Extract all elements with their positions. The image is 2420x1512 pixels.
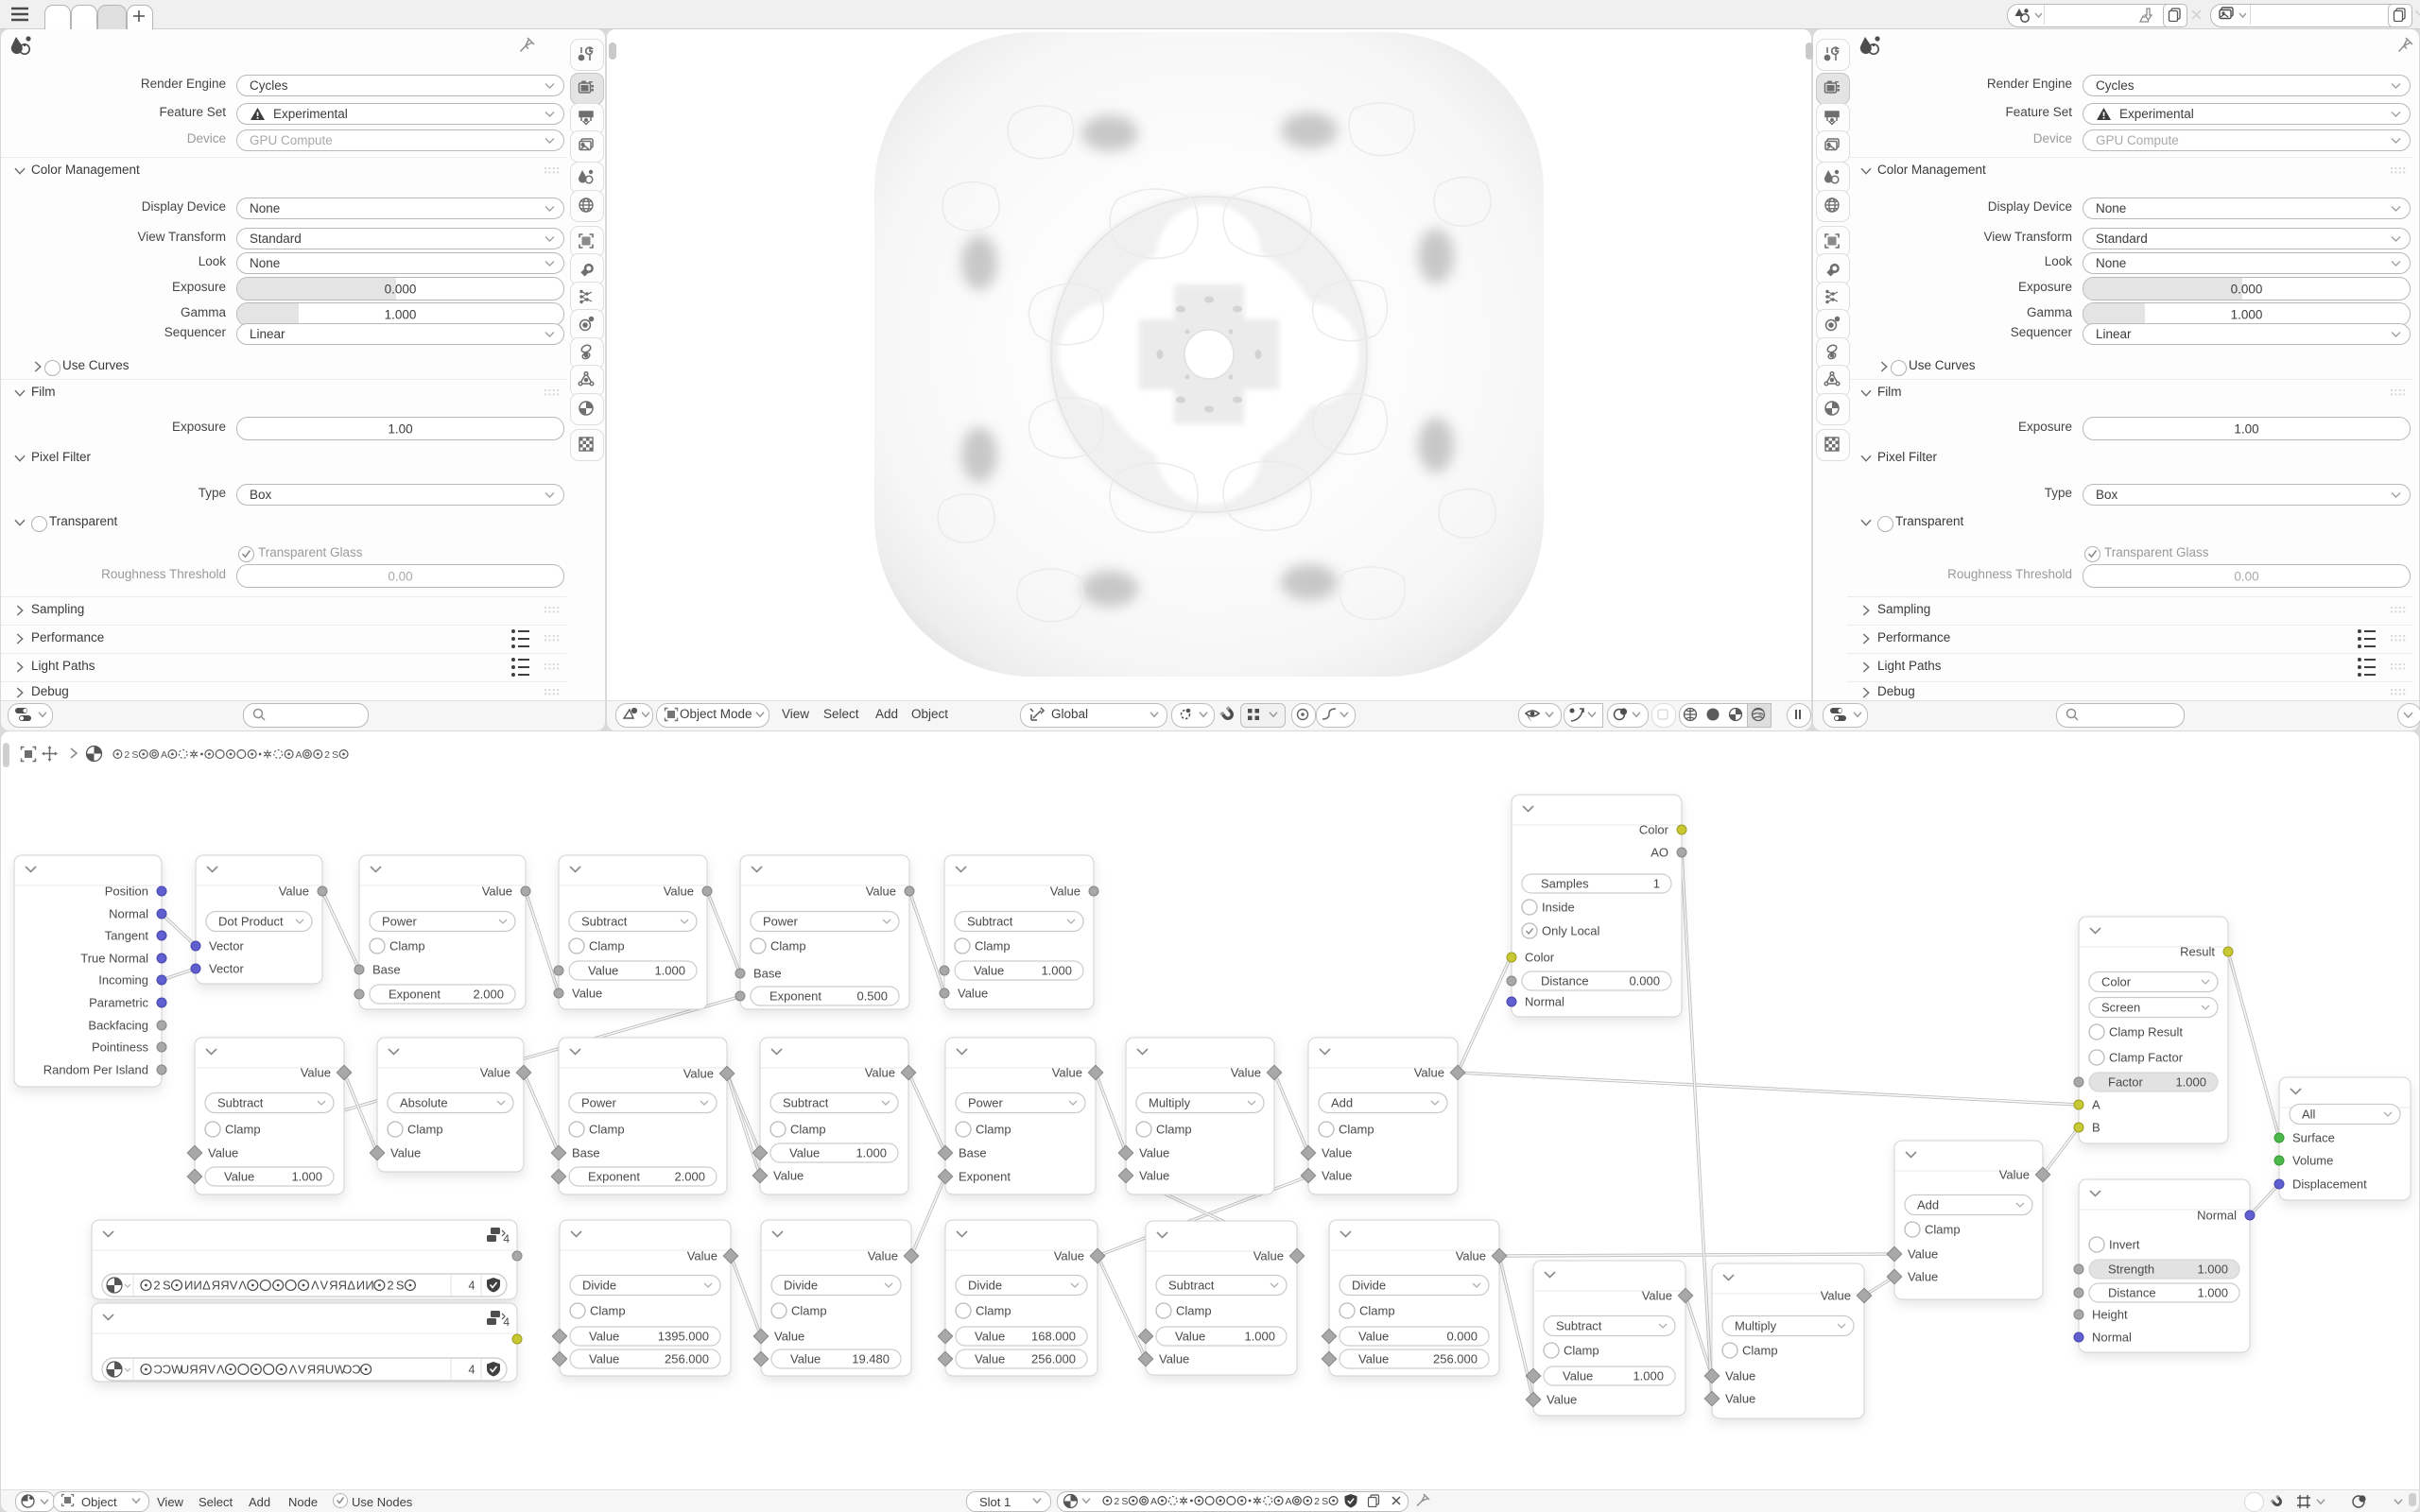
- svg-text:Value: Value: [1908, 1270, 1938, 1284]
- svg-text:C: C: [153, 1363, 162, 1377]
- svg-text:4: 4: [469, 1364, 475, 1377]
- svg-text:A: A: [1150, 1496, 1157, 1507]
- svg-text:1: 1: [1653, 877, 1660, 891]
- svg-text:2: 2: [153, 1279, 160, 1293]
- svg-text:Clamp: Clamp: [1925, 1223, 1961, 1237]
- svg-text:A: A: [296, 749, 302, 761]
- svg-text:Value: Value: [1642, 1289, 1672, 1303]
- svg-text:S: S: [1322, 1496, 1328, 1507]
- svg-text:Λ: Λ: [289, 1363, 298, 1377]
- svg-text:Add: Add: [1331, 1096, 1353, 1110]
- svg-text:Value: Value: [1050, 885, 1080, 899]
- svg-text:Exponent: Exponent: [389, 988, 441, 1002]
- svg-text:A: A: [2092, 1098, 2100, 1112]
- svg-text:Я: Я: [329, 1279, 337, 1293]
- svg-text:Value: Value: [1547, 1393, 1577, 1407]
- svg-text:Distance: Distance: [2108, 1286, 2156, 1300]
- svg-text:B: B: [2092, 1121, 2100, 1135]
- svg-text:256.000: 256.000: [1433, 1352, 1478, 1366]
- svg-text:S: S: [396, 1279, 405, 1293]
- svg-text:Value: Value: [588, 964, 618, 978]
- svg-text:2: 2: [324, 749, 330, 761]
- svg-text:Power: Power: [382, 915, 418, 929]
- svg-text:Subtract: Subtract: [581, 915, 628, 929]
- svg-text:V: V: [320, 1279, 329, 1293]
- svg-text:Subtract: Subtract: [967, 915, 1013, 929]
- svg-text:Clamp: Clamp: [1176, 1304, 1212, 1318]
- svg-text:1.000: 1.000: [1633, 1369, 1664, 1383]
- svg-text:И: И: [356, 1279, 365, 1293]
- svg-text:Tangent: Tangent: [105, 929, 149, 943]
- svg-text:Exponent: Exponent: [769, 989, 821, 1004]
- svg-text:Value: Value: [1563, 1369, 1593, 1383]
- svg-text:Add: Add: [1917, 1198, 1939, 1212]
- svg-text:Pointiness: Pointiness: [92, 1040, 148, 1055]
- svg-text:Samples: Samples: [1541, 877, 1589, 891]
- svg-text:Value: Value: [683, 1067, 714, 1081]
- svg-text:Base: Base: [372, 963, 401, 977]
- svg-text:Я: Я: [307, 1363, 316, 1377]
- svg-text:168.000: 168.000: [1031, 1330, 1076, 1344]
- svg-text:Subtract: Subtract: [1168, 1279, 1215, 1293]
- svg-text:Δ: Δ: [347, 1279, 355, 1293]
- svg-text:Value: Value: [790, 1352, 821, 1366]
- svg-text:Value: Value: [279, 885, 309, 899]
- svg-text:Exponent: Exponent: [588, 1170, 640, 1184]
- svg-text:Divide: Divide: [1352, 1279, 1386, 1293]
- svg-text:1.000: 1.000: [654, 964, 685, 978]
- svg-text:Λ: Λ: [311, 1279, 320, 1293]
- svg-text:1.000: 1.000: [2175, 1075, 2206, 1090]
- svg-text:1.000: 1.000: [291, 1170, 322, 1184]
- svg-text:Λ: Λ: [216, 1363, 225, 1377]
- svg-text:Normal: Normal: [1525, 995, 1564, 1009]
- svg-text:Value: Value: [301, 1066, 331, 1080]
- svg-text:4: 4: [503, 1315, 510, 1329]
- svg-text:Multiply: Multiply: [1735, 1319, 1777, 1333]
- svg-text:Absolute: Absolute: [400, 1096, 448, 1110]
- svg-text:Backfacing: Backfacing: [88, 1019, 148, 1033]
- svg-text:Я: Я: [212, 1279, 220, 1293]
- svg-text:AO: AO: [1651, 846, 1668, 860]
- svg-text:Height: Height: [2092, 1308, 2128, 1322]
- svg-text:Я: Я: [199, 1363, 207, 1377]
- svg-text:Value: Value: [1725, 1369, 1755, 1383]
- svg-text:И: И: [194, 1279, 202, 1293]
- svg-text:Strength: Strength: [2108, 1263, 2154, 1277]
- svg-text:Δ: Δ: [202, 1279, 211, 1293]
- svg-text:Value: Value: [687, 1249, 717, 1263]
- svg-text:Color: Color: [2101, 975, 2132, 989]
- svg-text:Value: Value: [1414, 1066, 1444, 1080]
- svg-text:Surface: Surface: [2292, 1131, 2335, 1145]
- svg-text:Inside: Inside: [1542, 901, 1575, 915]
- svg-text:Invert: Invert: [2109, 1238, 2140, 1252]
- svg-text:Я: Я: [220, 1279, 229, 1293]
- svg-text:Value: Value: [866, 885, 896, 899]
- svg-text:Я: Я: [338, 1279, 347, 1293]
- svg-text:2: 2: [1314, 1496, 1320, 1507]
- svg-text:Я: Я: [189, 1363, 198, 1377]
- svg-text:1.000: 1.000: [856, 1146, 887, 1160]
- svg-text:Subtract: Subtract: [217, 1096, 264, 1110]
- svg-text:2: 2: [387, 1279, 393, 1293]
- svg-text:Clamp: Clamp: [1359, 1304, 1395, 1318]
- svg-text:Clamp: Clamp: [790, 1123, 826, 1137]
- svg-text:Random Per Island: Random Per Island: [43, 1063, 148, 1077]
- svg-text:Value: Value: [868, 1249, 898, 1263]
- svg-text:Clamp: Clamp: [407, 1123, 443, 1137]
- svg-text:Value: Value: [1231, 1066, 1261, 1080]
- svg-text:Value: Value: [1456, 1249, 1486, 1263]
- svg-text:Power: Power: [763, 915, 799, 929]
- svg-text:Value: Value: [1358, 1352, 1389, 1366]
- svg-text:4: 4: [469, 1280, 475, 1293]
- svg-text:Result: Result: [2180, 945, 2215, 959]
- svg-text:V: V: [230, 1279, 238, 1293]
- svg-text:1.000: 1.000: [2197, 1286, 2228, 1300]
- svg-text:Value: Value: [390, 1146, 421, 1160]
- svg-text:Clamp: Clamp: [589, 939, 625, 954]
- svg-text:Factor: Factor: [2108, 1075, 2144, 1090]
- svg-text:Vector: Vector: [209, 939, 245, 954]
- svg-text:Screen: Screen: [2101, 1001, 2140, 1015]
- svg-text:Value: Value: [975, 1330, 1005, 1344]
- svg-text:Value: Value: [1253, 1249, 1284, 1263]
- svg-text:Volume: Volume: [2292, 1154, 2333, 1168]
- svg-text:U: U: [181, 1363, 189, 1377]
- svg-text:Value: Value: [664, 885, 694, 899]
- svg-text:Value: Value: [1999, 1168, 2030, 1182]
- svg-text:U: U: [325, 1363, 334, 1377]
- svg-text:S: S: [1121, 1496, 1128, 1507]
- svg-text:V: V: [298, 1363, 306, 1377]
- svg-text:Vector: Vector: [209, 962, 245, 976]
- svg-text:Clamp: Clamp: [770, 939, 806, 954]
- svg-text:Value: Value: [482, 885, 512, 899]
- svg-text:Normal: Normal: [2197, 1209, 2237, 1223]
- svg-text:Normal: Normal: [2092, 1331, 2132, 1345]
- svg-text:Value: Value: [1139, 1169, 1169, 1183]
- svg-text:1.000: 1.000: [1244, 1330, 1275, 1344]
- svg-text:Clamp: Clamp: [590, 1304, 626, 1318]
- svg-text:Clamp: Clamp: [791, 1304, 827, 1318]
- svg-text:Exponent: Exponent: [959, 1170, 1011, 1184]
- svg-text:Clamp Result: Clamp Result: [2109, 1025, 2183, 1039]
- svg-text:Incoming: Incoming: [98, 973, 148, 988]
- svg-text:4: 4: [503, 1232, 510, 1246]
- svg-text:2: 2: [1114, 1496, 1119, 1507]
- svg-text:C: C: [352, 1363, 360, 1377]
- svg-text:Clamp: Clamp: [225, 1123, 261, 1137]
- svg-text:0.500: 0.500: [856, 989, 888, 1004]
- svg-text:2: 2: [124, 749, 130, 761]
- svg-text:Λ: Λ: [238, 1279, 247, 1293]
- svg-text:Value: Value: [1052, 1066, 1082, 1080]
- svg-text:Value: Value: [774, 1330, 804, 1344]
- svg-text:Color: Color: [1639, 823, 1669, 837]
- svg-text:Value: Value: [773, 1169, 804, 1183]
- svg-text:Value: Value: [865, 1066, 895, 1080]
- svg-text:Value: Value: [1322, 1146, 1352, 1160]
- svg-text:Multiply: Multiply: [1149, 1096, 1191, 1110]
- svg-text:И: И: [365, 1279, 373, 1293]
- svg-text:Subtract: Subtract: [1556, 1319, 1602, 1333]
- svg-text:True Normal: True Normal: [80, 952, 148, 966]
- svg-text:Value: Value: [1175, 1330, 1205, 1344]
- svg-text:All: All: [2302, 1108, 2316, 1122]
- svg-text:Value: Value: [1139, 1146, 1169, 1160]
- svg-text:Base: Base: [572, 1146, 600, 1160]
- svg-text:Value: Value: [958, 987, 988, 1001]
- svg-text:Clamp Factor: Clamp Factor: [2109, 1051, 2184, 1065]
- svg-text:Clamp: Clamp: [976, 1304, 1011, 1318]
- svg-text:Base: Base: [753, 967, 782, 981]
- svg-text:Clamp: Clamp: [1564, 1344, 1599, 1358]
- svg-text:Value: Value: [1159, 1352, 1189, 1366]
- svg-text:A: A: [1286, 1496, 1292, 1507]
- svg-text:Value: Value: [974, 964, 1004, 978]
- svg-text:1.000: 1.000: [1041, 964, 1072, 978]
- svg-text:Power: Power: [968, 1096, 1004, 1110]
- svg-text:Position: Position: [105, 885, 148, 899]
- svg-text:И: И: [184, 1279, 193, 1293]
- svg-text:2.000: 2.000: [473, 988, 504, 1002]
- svg-text:C: C: [163, 1363, 171, 1377]
- svg-text:Divide: Divide: [968, 1279, 1002, 1293]
- svg-text:Value: Value: [1054, 1249, 1084, 1263]
- svg-text:Clamp: Clamp: [1742, 1344, 1778, 1358]
- svg-text:Value: Value: [1821, 1289, 1851, 1303]
- svg-text:V: V: [207, 1363, 216, 1377]
- svg-text:Value: Value: [589, 1330, 619, 1344]
- svg-text:1.000: 1.000: [2197, 1263, 2228, 1277]
- svg-text:Value: Value: [975, 1352, 1005, 1366]
- svg-text:Parametric: Parametric: [89, 996, 148, 1010]
- svg-text:Dot Product: Dot Product: [218, 915, 284, 929]
- svg-text:Divide: Divide: [784, 1279, 818, 1293]
- svg-text:2.000: 2.000: [674, 1170, 705, 1184]
- svg-text:Distance: Distance: [1541, 974, 1589, 988]
- svg-text:S: S: [131, 749, 138, 761]
- svg-text:Value: Value: [208, 1146, 238, 1160]
- svg-text:S: S: [332, 749, 338, 761]
- svg-text:Clamp: Clamp: [975, 939, 1011, 954]
- svg-text:Clamp: Clamp: [589, 1123, 625, 1137]
- svg-text:Value: Value: [1725, 1392, 1755, 1406]
- svg-text:Я: Я: [316, 1363, 324, 1377]
- svg-text:S: S: [163, 1279, 171, 1293]
- svg-text:Value: Value: [480, 1066, 510, 1080]
- svg-text:Clamp: Clamp: [976, 1123, 1011, 1137]
- svg-text:A: A: [161, 749, 167, 761]
- svg-text:Value: Value: [789, 1146, 820, 1160]
- svg-text:Value: Value: [572, 987, 602, 1001]
- svg-text:Base: Base: [959, 1146, 987, 1160]
- svg-text:Displacement: Displacement: [2292, 1177, 2367, 1192]
- svg-text:Subtract: Subtract: [783, 1096, 829, 1110]
- svg-text:256.000: 256.000: [1031, 1352, 1076, 1366]
- svg-text:Clamp: Clamp: [389, 939, 425, 954]
- svg-text:Color: Color: [1525, 951, 1555, 965]
- svg-text:Value: Value: [1322, 1169, 1352, 1183]
- svg-text:Value: Value: [224, 1170, 254, 1184]
- svg-text:Normal: Normal: [109, 907, 148, 921]
- svg-text:Value: Value: [1908, 1247, 1938, 1262]
- svg-text:C: C: [343, 1363, 352, 1377]
- svg-text:Only Local: Only Local: [1542, 924, 1600, 938]
- svg-text:256.000: 256.000: [665, 1352, 709, 1366]
- svg-text:Power: Power: [581, 1096, 617, 1110]
- svg-text:Value: Value: [589, 1352, 619, 1366]
- svg-text:Divide: Divide: [582, 1279, 616, 1293]
- svg-text:Clamp: Clamp: [1339, 1123, 1374, 1137]
- svg-text:0.000: 0.000: [1629, 974, 1660, 988]
- svg-text:Clamp: Clamp: [1156, 1123, 1192, 1137]
- svg-text:0.000: 0.000: [1446, 1330, 1478, 1344]
- svg-text:19.480: 19.480: [852, 1352, 890, 1366]
- svg-text:Value: Value: [1358, 1330, 1389, 1344]
- svg-text:1395.000: 1395.000: [658, 1330, 709, 1344]
